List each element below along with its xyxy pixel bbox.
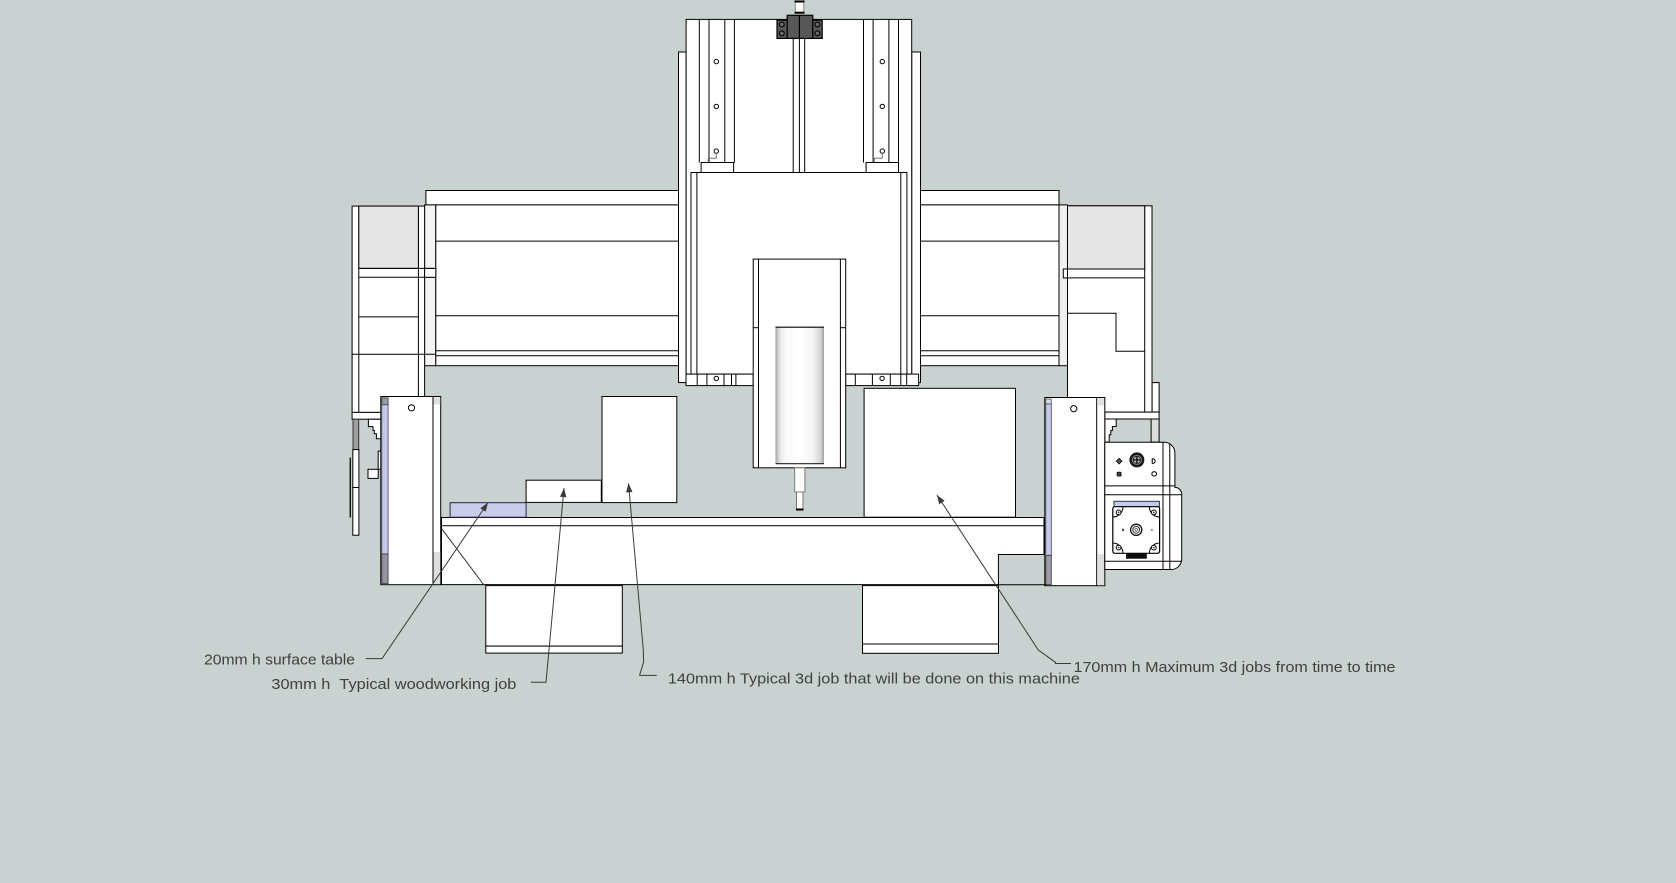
svg-text:30mm h Typical woodworking jo: 30mm h Typical woodworking job xyxy=(271,676,516,693)
svg-text:170mm h Maximum 3d jobs from t: 170mm h Maximum 3d jobs from time to tim… xyxy=(1074,659,1396,676)
svg-text:20mm h surface table: 20mm h surface table xyxy=(204,652,355,669)
svg-text:140mm h Typical 3d job that wi: 140mm h Typical 3d job that will be done… xyxy=(668,670,1080,687)
